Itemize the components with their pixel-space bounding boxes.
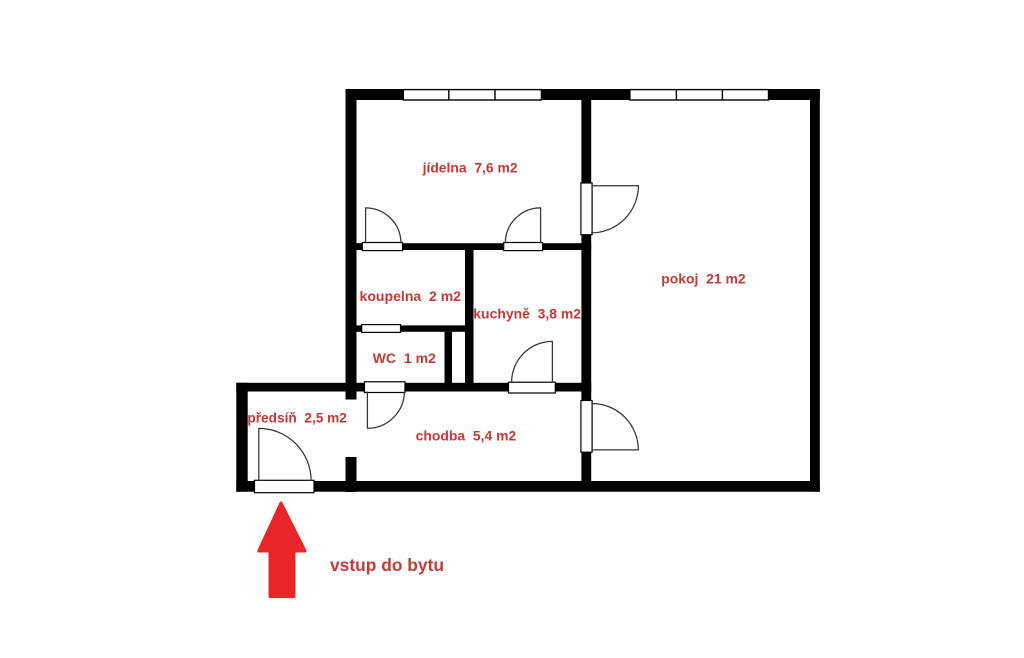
svg-text:chodba 5,4 m2: chodba 5,4 m2 [416, 428, 517, 444]
svg-text:WC 1 m2: WC 1 m2 [373, 350, 437, 366]
svg-text:předsíň 2,5 m2: předsíň 2,5 m2 [247, 409, 347, 425]
svg-text:kuchyně 3,8 m2: kuchyně 3,8 m2 [473, 306, 581, 322]
svg-text:vstup do bytu: vstup do bytu [330, 555, 444, 575]
svg-text:pokoj 21 m2: pokoj 21 m2 [661, 270, 746, 286]
svg-text:koupelna 2 m2: koupelna 2 m2 [360, 288, 462, 304]
svg-text:jídelna 7,6 m2: jídelna 7,6 m2 [422, 160, 518, 176]
